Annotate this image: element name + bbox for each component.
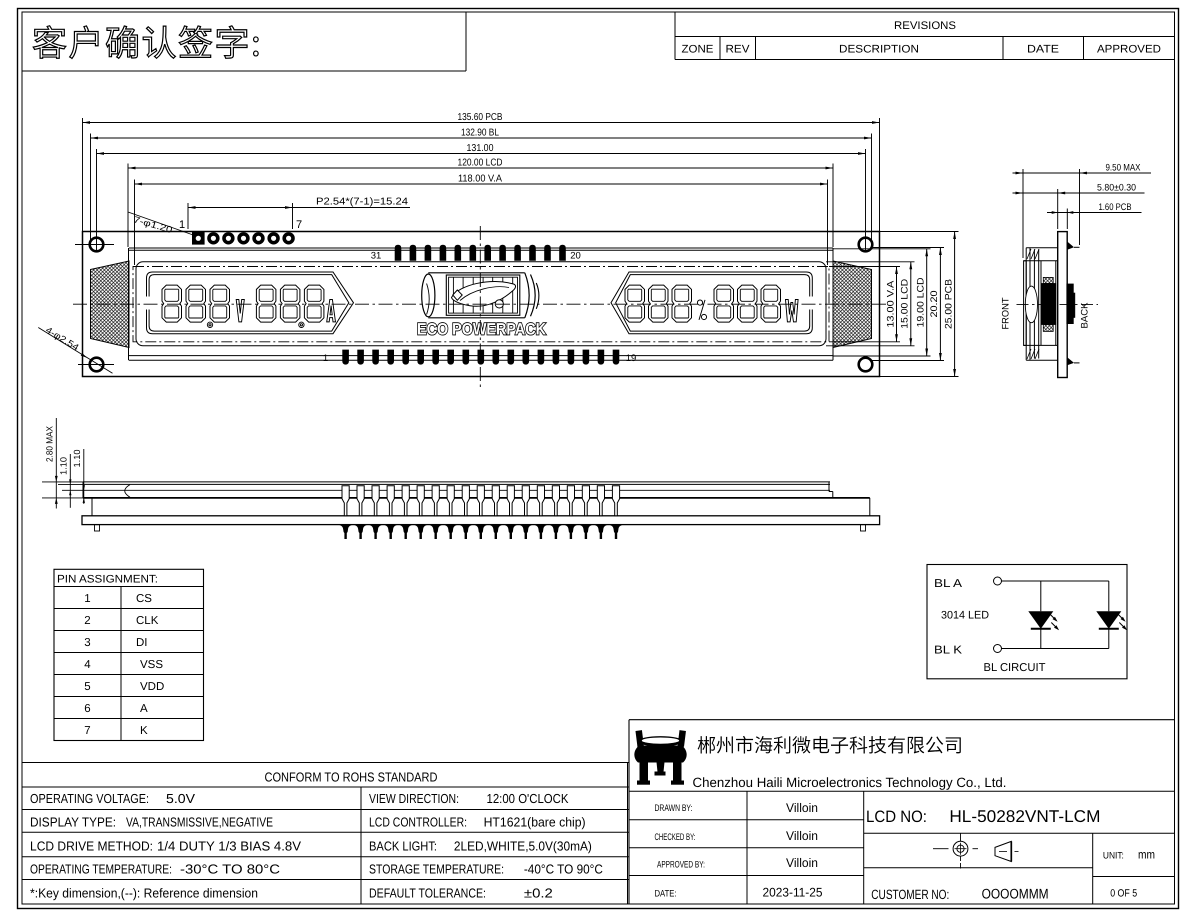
svg-text:4: 4	[84, 659, 91, 671]
svg-text:BACK: BACK	[1080, 302, 1091, 329]
svg-text:Villoin: Villoin	[786, 856, 818, 870]
svg-text:5: 5	[84, 681, 90, 693]
svg-text:131.00: 131.00	[467, 143, 494, 154]
svg-text:Villoin: Villoin	[786, 829, 818, 843]
svg-text:OPERATING TEMPERATURE:: OPERATING TEMPERATURE:	[30, 862, 172, 877]
svg-text:HT1621(bare chip): HT1621(bare chip)	[484, 815, 586, 830]
svg-text:9.50 MAX: 9.50 MAX	[1106, 163, 1142, 174]
svg-text:±0.2: ±0.2	[524, 886, 553, 901]
svg-text:BL K: BL K	[934, 645, 962, 657]
svg-text:118.00 V.A: 118.00 V.A	[458, 174, 502, 185]
svg-text:LCD DRIVE METHOD:: LCD DRIVE METHOD:	[30, 839, 153, 854]
svg-text:ECO POWERPACK: ECO POWERPACK	[417, 321, 546, 339]
svg-text:Villoin: Villoin	[786, 801, 818, 815]
svg-text:2: 2	[84, 615, 90, 627]
svg-text:VA,TRANSMISSIVE,NEGATIVE: VA,TRANSMISSIVE,NEGATIVE	[126, 815, 273, 830]
svg-text:CLK: CLK	[136, 615, 159, 627]
svg-text:DRAWN BY:: DRAWN BY:	[655, 803, 693, 814]
svg-text:1: 1	[84, 593, 90, 605]
svg-text:HL-50282VNT-LCM: HL-50282VNT-LCM	[949, 807, 1100, 826]
svg-text:STORAGE TEMPERATURE:: STORAGE TEMPERATURE:	[369, 862, 504, 877]
svg-text:OPERATING VOLTAGE:: OPERATING VOLTAGE:	[30, 791, 149, 806]
svg-text:2LED,WHITE,5.0V(30mA): 2LED,WHITE,5.0V(30mA)	[454, 839, 592, 854]
svg-text:120.00 LCD: 120.00 LCD	[458, 158, 503, 169]
svg-text:FRONT: FRONT	[1001, 297, 1012, 329]
svg-text:12:00 O'CLOCK: 12:00 O'CLOCK	[487, 791, 569, 806]
svg-text:P2.54*(7-1)=15.24: P2.54*(7-1)=15.24	[316, 197, 408, 208]
svg-text:OOOOMMM: OOOOMMM	[982, 886, 1049, 902]
svg-text:0 OF 5: 0 OF 5	[1110, 888, 1137, 900]
svg-text:1.10: 1.10	[72, 450, 82, 468]
svg-text:7: 7	[84, 725, 90, 737]
svg-text:1: 1	[323, 353, 328, 364]
svg-text:3: 3	[84, 637, 90, 649]
svg-text:REV: REV	[726, 44, 751, 56]
svg-text:25.00 PCB: 25.00 PCB	[943, 279, 954, 329]
svg-text:CUSTOMER NO:: CUSTOMER NO:	[871, 887, 949, 902]
svg-text:1.10: 1.10	[59, 457, 69, 475]
svg-text:2023-11-25: 2023-11-25	[763, 886, 823, 900]
svg-text:-30°C TO 80°C: -30°C TO 80°C	[180, 862, 280, 877]
svg-text:REVISIONS: REVISIONS	[894, 20, 956, 32]
svg-text:19.00 LCD: 19.00 LCD	[916, 277, 927, 327]
svg-text:135.60 PCB: 135.60 PCB	[458, 112, 503, 123]
svg-text:ZONE: ZONE	[682, 44, 714, 56]
svg-text:Chenzhou Haili Microelectronic: Chenzhou Haili Microelectronics Technolo…	[693, 775, 1007, 790]
svg-text:BL A: BL A	[934, 578, 962, 590]
svg-text:DISPLAY TYPE:: DISPLAY TYPE:	[30, 815, 116, 830]
svg-text:20: 20	[570, 251, 581, 262]
svg-text:APPROVED: APPROVED	[1097, 44, 1161, 56]
svg-text:20.20: 20.20	[929, 291, 940, 318]
svg-text:6: 6	[84, 703, 90, 715]
svg-text:DI: DI	[136, 637, 148, 649]
svg-text:2.80 MAX: 2.80 MAX	[45, 426, 55, 462]
svg-text:*:Key dimension,(--): Referenc: *:Key dimension,(--): Reference dimensio…	[30, 886, 258, 901]
svg-text:A: A	[140, 703, 148, 715]
svg-text:5.80±0.30: 5.80±0.30	[1097, 183, 1136, 194]
svg-text:5.0V: 5.0V	[166, 791, 195, 806]
svg-text:7: 7	[296, 219, 302, 231]
svg-text:APPROVED BY:: APPROVED BY:	[657, 860, 705, 871]
svg-text:BL CIRCUIT: BL CIRCUIT	[984, 662, 1046, 674]
svg-text:1: 1	[179, 219, 185, 231]
svg-text:PIN ASSIGNMENT:: PIN ASSIGNMENT:	[57, 574, 158, 586]
svg-text:1/4 DUTY 1/3 BIAS 4.8V: 1/4 DUTY 1/3 BIAS 4.8V	[157, 839, 301, 854]
svg-text:DEFAULT TOLERANCE:: DEFAULT TOLERANCE:	[369, 886, 486, 901]
svg-text:K: K	[140, 725, 148, 737]
svg-text:13.00 V.A: 13.00 V.A	[885, 280, 896, 328]
svg-text:DATE: DATE	[1027, 44, 1059, 56]
svg-text:VIEW DIRECTION:: VIEW DIRECTION:	[369, 791, 459, 806]
svg-text:-40°C TO 90°C: -40°C TO 90°C	[524, 862, 603, 877]
svg-text:CHECKED BY:: CHECKED BY:	[655, 832, 696, 843]
svg-text:LCD CONTROLLER:: LCD CONTROLLER:	[369, 815, 467, 830]
svg-text:DATE:: DATE:	[655, 889, 677, 900]
svg-text:19: 19	[626, 353, 637, 364]
svg-text:BACK LIGHT:: BACK LIGHT:	[369, 839, 437, 854]
svg-text:1.60 PCB: 1.60 PCB	[1099, 202, 1132, 213]
svg-text:VSS: VSS	[140, 659, 163, 671]
svg-text:15.00 LCD: 15.00 LCD	[900, 279, 911, 329]
svg-text:mm: mm	[1138, 848, 1155, 862]
svg-text:CS: CS	[136, 593, 152, 605]
svg-text:LCD NO:: LCD NO:	[866, 808, 927, 826]
svg-text:3014 LED: 3014 LED	[941, 610, 989, 622]
svg-text:31: 31	[371, 251, 382, 262]
svg-text:DESCRIPTION: DESCRIPTION	[839, 44, 919, 56]
svg-text:UNIT:: UNIT:	[1103, 851, 1124, 862]
svg-text:CONFORM TO ROHS STANDARD: CONFORM TO ROHS STANDARD	[265, 770, 438, 785]
svg-text:VDD: VDD	[140, 681, 164, 693]
svg-text:132.90 BL: 132.90 BL	[461, 128, 499, 139]
